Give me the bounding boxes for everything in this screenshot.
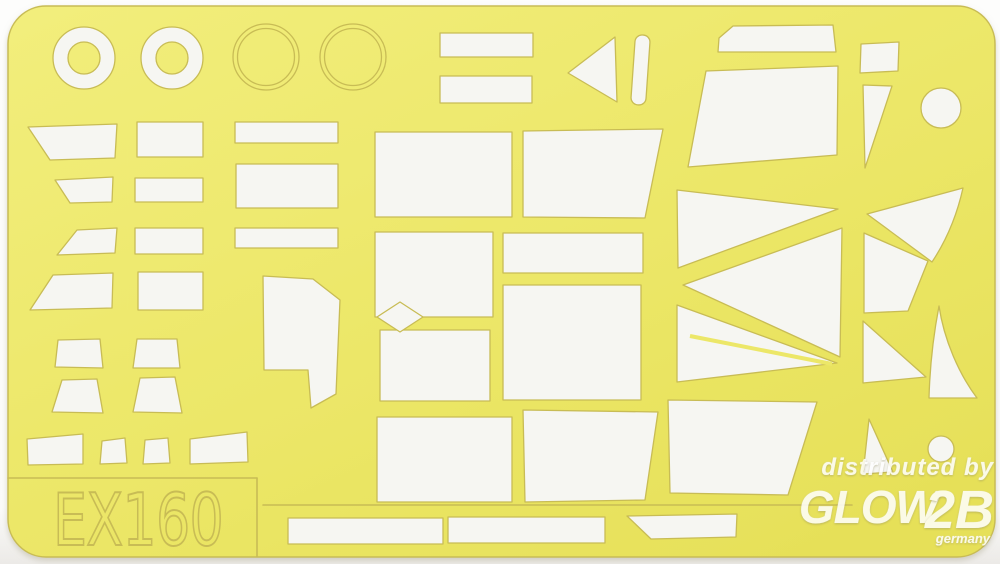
product-photo: EX160 distributed by GLOW2B germany (0, 0, 1000, 564)
mask-shape (440, 33, 533, 57)
mask-shape (377, 417, 512, 502)
mask-shape (135, 228, 203, 254)
mask-shape (138, 272, 203, 310)
mask-shape (718, 25, 836, 52)
mask-shape (375, 132, 512, 217)
mask-shape (143, 438, 170, 464)
mask-shape (133, 339, 180, 368)
mask-shape (27, 434, 83, 465)
mask-shape (135, 178, 203, 202)
strip-mask (448, 517, 605, 543)
mask-sheet-graphic: EX160 (0, 0, 1000, 564)
mask-shape (235, 122, 338, 143)
mask-shape (375, 232, 493, 317)
mask-shape (100, 438, 127, 464)
mask-shape (235, 228, 338, 248)
mask-shape (133, 377, 182, 413)
mask-shape (503, 233, 643, 273)
sheet-code-engraving: EX160 (53, 478, 223, 562)
mask-shape (523, 410, 658, 502)
mask-shape (440, 76, 532, 103)
mask-shape (55, 339, 103, 368)
mask-shape (523, 129, 663, 218)
circle-mask (921, 88, 961, 128)
mask-shape (688, 66, 838, 167)
mask-shape (236, 164, 338, 208)
mask-shape (137, 122, 203, 157)
mask-shape (503, 285, 641, 400)
mask-shape (860, 42, 899, 73)
mask-shape (380, 330, 490, 401)
strip-mask (288, 518, 443, 544)
circle-mask (928, 436, 954, 462)
